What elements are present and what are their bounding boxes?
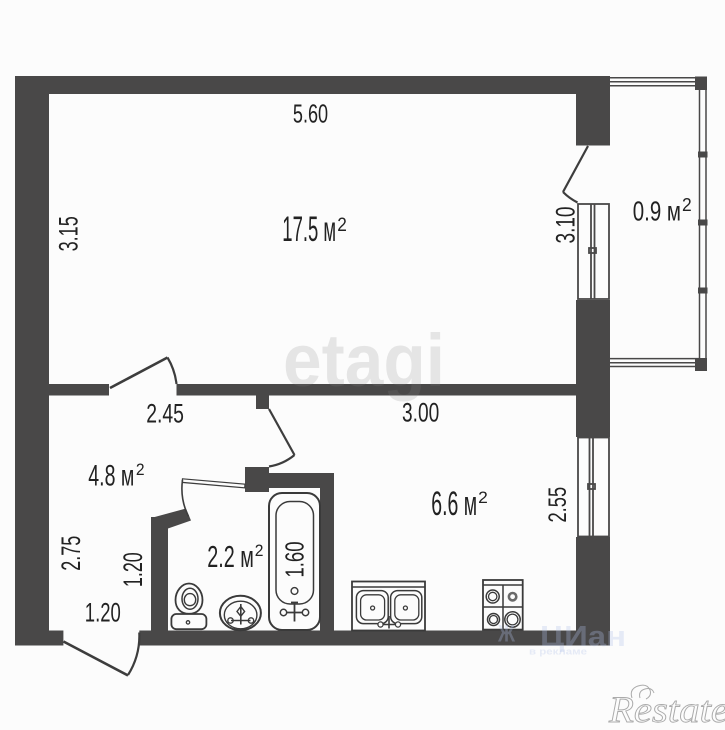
svg-text:etagi: etagi [283, 319, 445, 402]
svg-text:2: 2 [478, 488, 488, 507]
svg-text:2.45: 2.45 [146, 398, 184, 428]
svg-text:2: 2 [682, 195, 692, 215]
svg-text:4.8 м: 4.8 м [88, 460, 134, 493]
svg-text:2: 2 [255, 541, 264, 560]
svg-text:17.5 м: 17.5 м [282, 210, 336, 249]
svg-text:1.20: 1.20 [85, 598, 121, 628]
svg-text:2: 2 [136, 460, 145, 479]
svg-text:1.60: 1.60 [280, 542, 310, 578]
svg-text:2.75: 2.75 [56, 536, 86, 571]
svg-text:Restate: Restate [608, 690, 725, 725]
svg-text:5.60: 5.60 [293, 99, 328, 129]
svg-text:в рекламе: в рекламе [529, 647, 587, 658]
svg-text:2: 2 [337, 214, 347, 236]
svg-text:2.2 м: 2.2 м [207, 540, 254, 574]
svg-text:3.00: 3.00 [402, 398, 439, 428]
svg-text:6.6 м: 6.6 м [431, 485, 477, 523]
svg-text:2.55: 2.55 [544, 487, 572, 523]
svg-text:Ж: Ж [497, 621, 515, 648]
svg-text:3.15: 3.15 [54, 216, 84, 251]
svg-text:1.20: 1.20 [118, 552, 148, 587]
svg-text:0.9 м: 0.9 м [633, 196, 681, 227]
svg-text:3.10: 3.10 [551, 207, 581, 244]
